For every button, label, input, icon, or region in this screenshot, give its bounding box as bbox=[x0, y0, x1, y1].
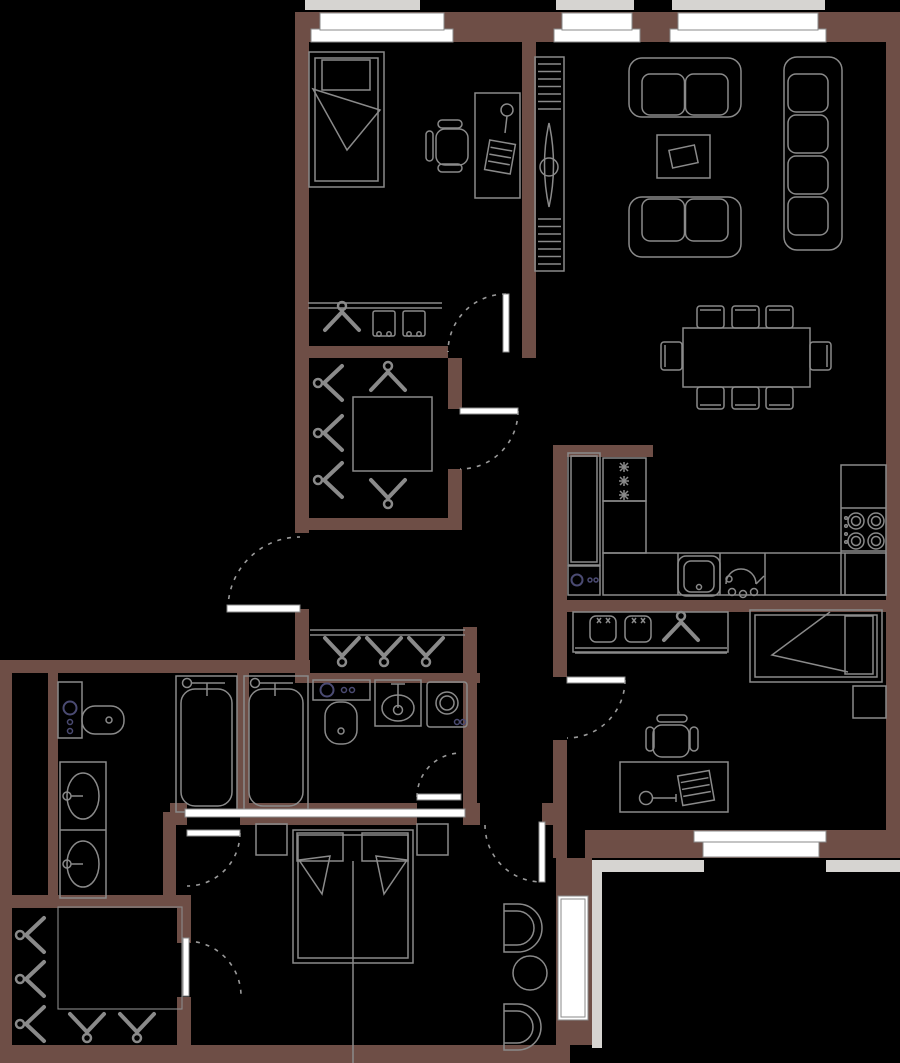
wall-segment bbox=[48, 672, 58, 900]
wall-segment bbox=[295, 12, 309, 533]
window bbox=[694, 831, 826, 857]
wall-segment bbox=[448, 358, 462, 409]
door-leaf bbox=[187, 830, 240, 836]
door-leaf bbox=[503, 294, 509, 352]
door-leaf bbox=[567, 677, 625, 683]
door-leaf bbox=[539, 822, 545, 882]
wall-segment bbox=[553, 612, 567, 677]
door-leaf bbox=[417, 794, 461, 800]
window bbox=[311, 13, 453, 42]
door-leaf bbox=[460, 408, 518, 414]
door-leaf bbox=[227, 605, 300, 612]
floor-plan bbox=[0, 0, 900, 1063]
door-leaf bbox=[183, 938, 189, 996]
wall-segment bbox=[0, 895, 190, 908]
balcony-door bbox=[558, 896, 588, 1020]
built-in-wardrobe bbox=[185, 809, 465, 817]
wall-segment bbox=[237, 672, 249, 812]
wall-segment bbox=[0, 660, 310, 673]
wall-segment bbox=[522, 42, 536, 358]
wall-segment bbox=[542, 803, 567, 825]
wall-segment bbox=[295, 518, 462, 530]
wall-segment bbox=[177, 997, 191, 1045]
wall-segment bbox=[309, 346, 448, 358]
wall-segment bbox=[0, 1045, 570, 1063]
window bbox=[554, 13, 640, 42]
wall-segment bbox=[886, 12, 900, 858]
wall-segment bbox=[0, 660, 12, 1063]
floor-plan-canvas bbox=[0, 0, 900, 1063]
wall-segment bbox=[553, 740, 567, 858]
wall-segment bbox=[553, 445, 567, 612]
wall-segment bbox=[177, 895, 191, 943]
wall-segment bbox=[163, 812, 176, 895]
window bbox=[670, 13, 826, 42]
wall-segment bbox=[463, 627, 477, 825]
